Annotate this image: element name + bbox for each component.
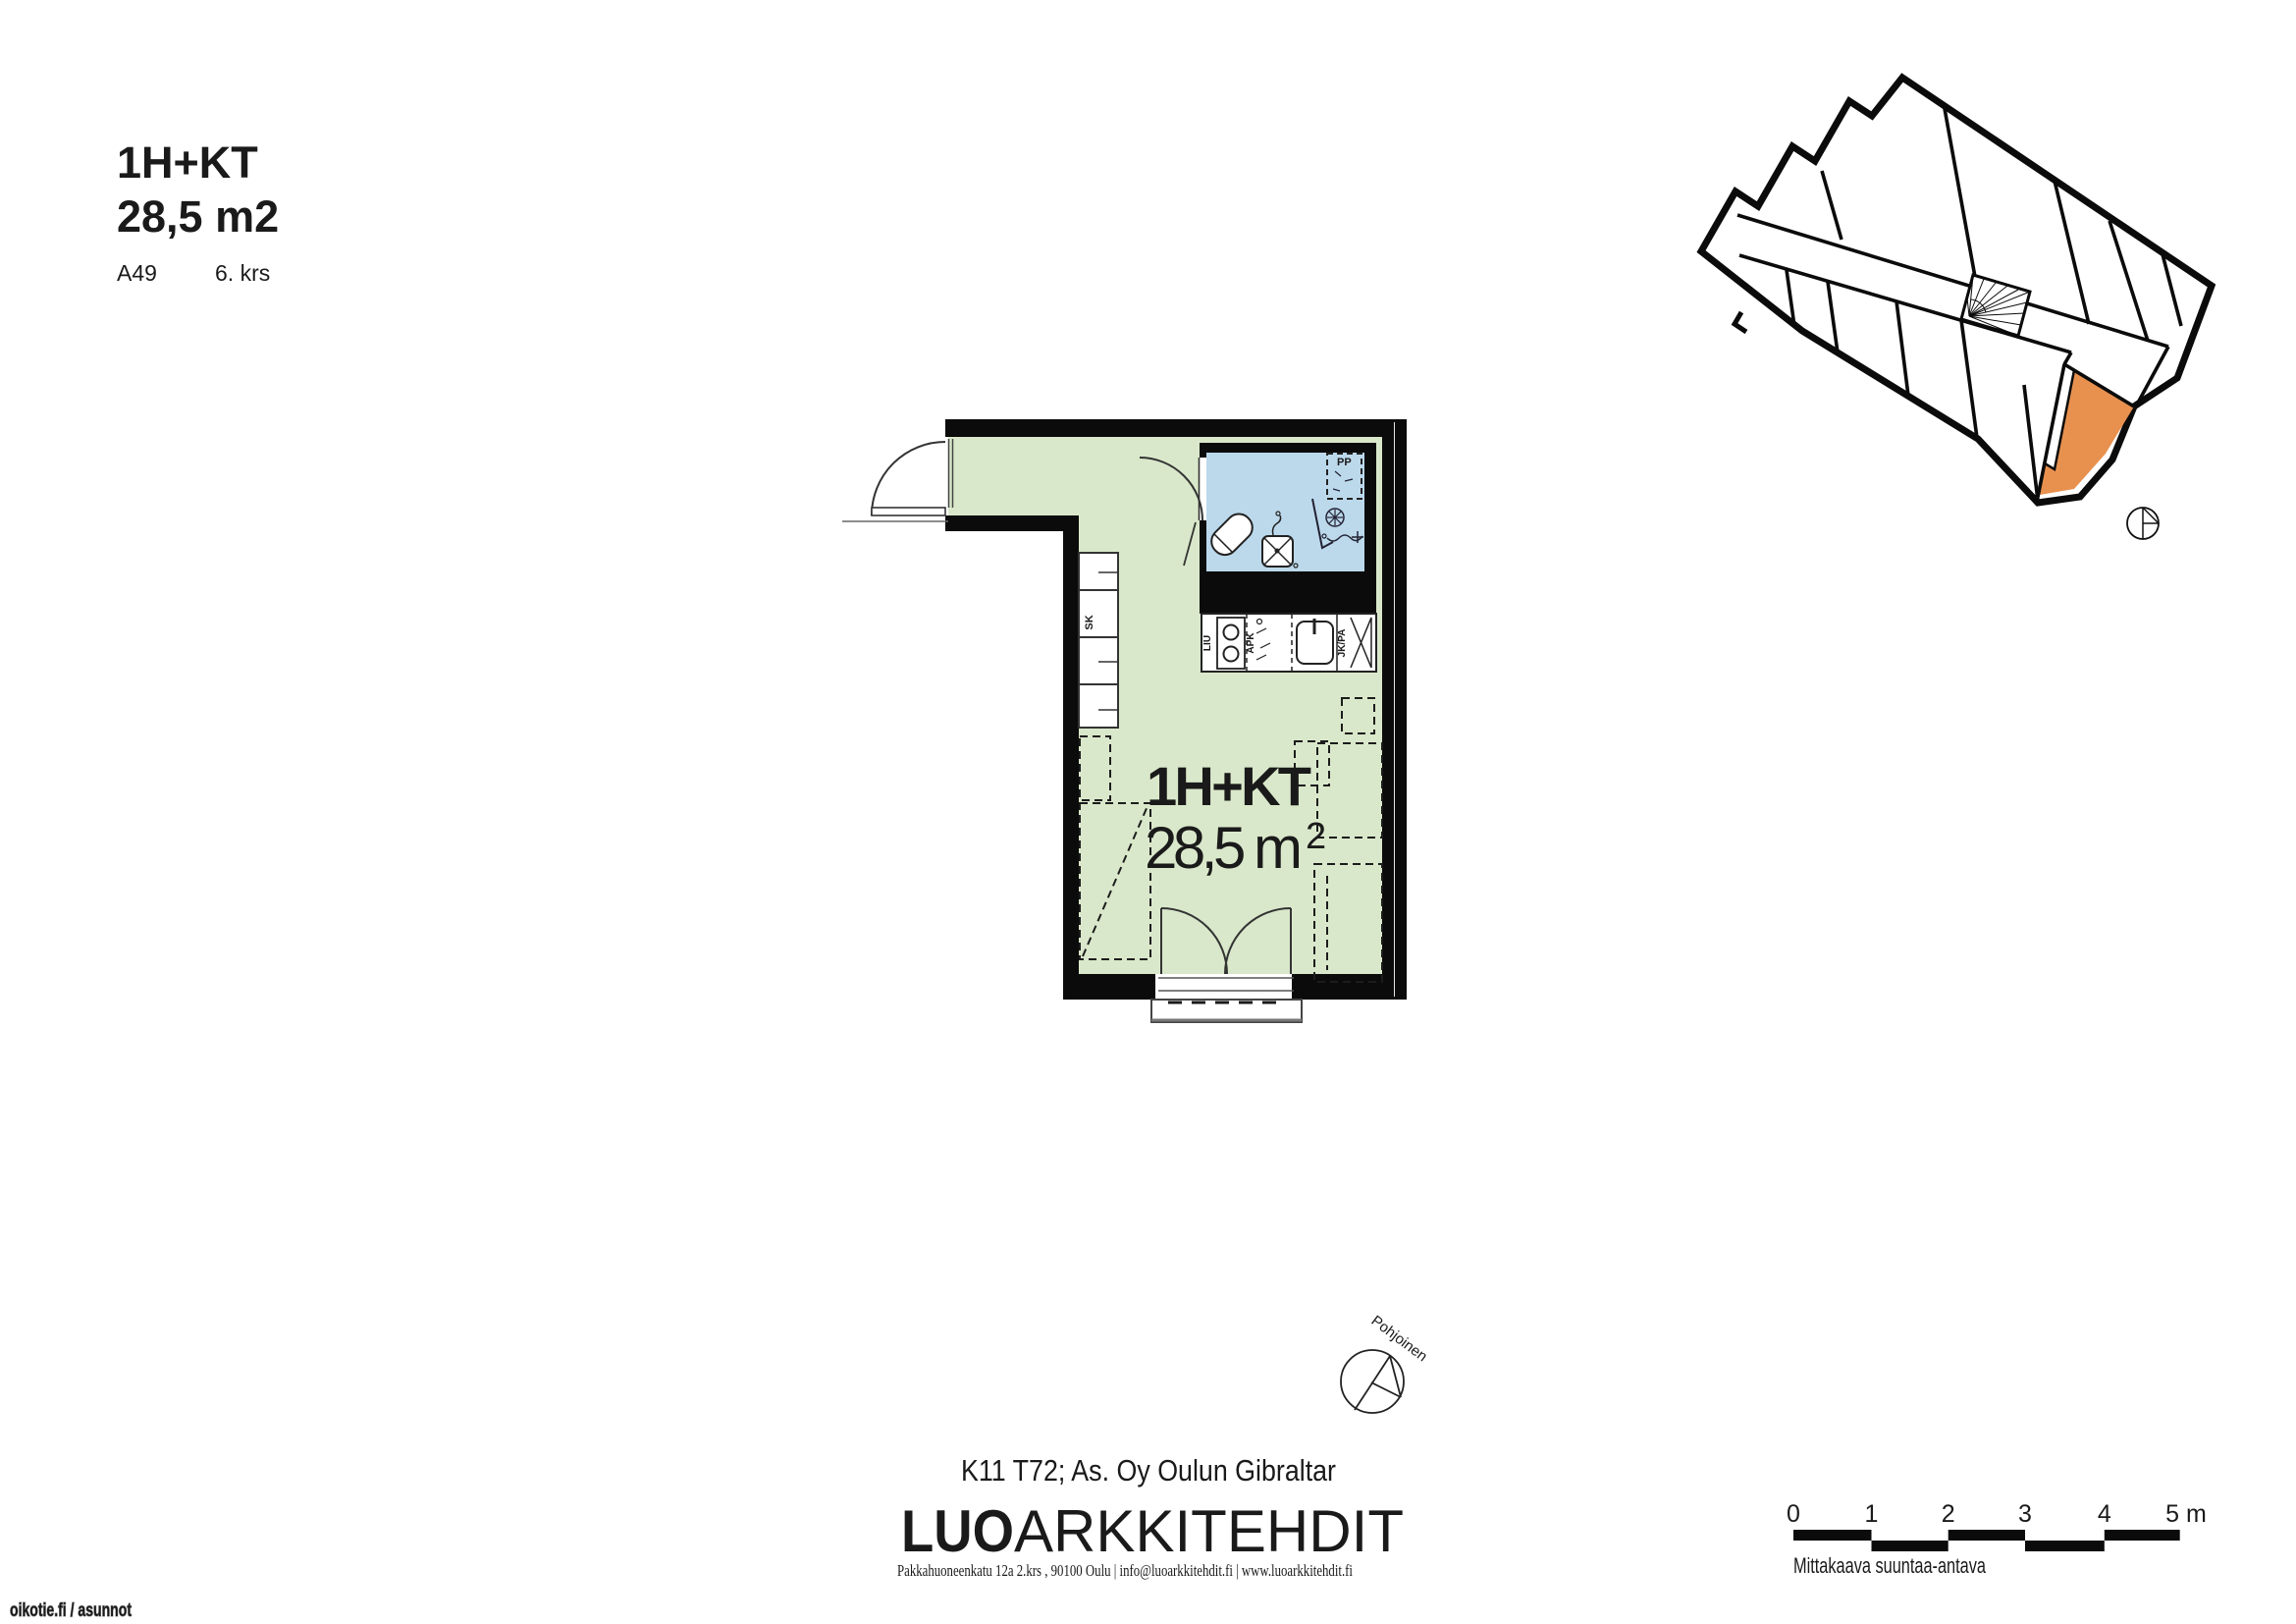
svg-text:K11 T72; As. Oy Oulun Gibralta: K11 T72; As. Oy Oulun Gibraltar xyxy=(961,1453,1336,1488)
svg-text:28,5 m2: 28,5 m2 xyxy=(117,191,279,242)
svg-text:6. krs: 6. krs xyxy=(215,260,270,286)
svg-text:1H+KT: 1H+KT xyxy=(117,137,258,188)
svg-text:LIU: LIU xyxy=(1202,635,1213,651)
svg-text:Mittakaava suuntaa-antava: Mittakaava suuntaa-antava xyxy=(1793,1553,1987,1578)
svg-text:2: 2 xyxy=(1306,816,1326,857)
svg-text:APK: APK xyxy=(1246,632,1256,654)
svg-text:Pakkahuoneenkatu 12a 2.krs ,: Pakkahuoneenkatu 12a 2.krs , 90100 Oulu … xyxy=(897,1561,1353,1580)
svg-text:SK: SK xyxy=(1084,615,1095,629)
svg-text:5 m: 5 m xyxy=(2165,1500,2207,1528)
svg-text:28,5 m: 28,5 m xyxy=(1145,815,1303,881)
svg-text:1: 1 xyxy=(1865,1500,1879,1528)
svg-text:LUO: LUO xyxy=(901,1498,1014,1564)
svg-text:1H+KT: 1H+KT xyxy=(1147,755,1311,817)
svg-text:0: 0 xyxy=(1787,1500,1800,1528)
svg-text:ARKKITEHDIT: ARKKITEHDIT xyxy=(1014,1498,1404,1564)
svg-text:oikotie.fi / asunnot: oikotie.fi / asunnot xyxy=(10,1600,132,1621)
svg-text:3: 3 xyxy=(2018,1500,2032,1528)
svg-text:PP: PP xyxy=(1337,457,1352,468)
svg-text:2: 2 xyxy=(1942,1500,1955,1528)
svg-text:A49: A49 xyxy=(117,260,157,286)
svg-text:4: 4 xyxy=(2098,1500,2111,1528)
svg-text:JK/PA: JK/PA xyxy=(1337,629,1348,658)
